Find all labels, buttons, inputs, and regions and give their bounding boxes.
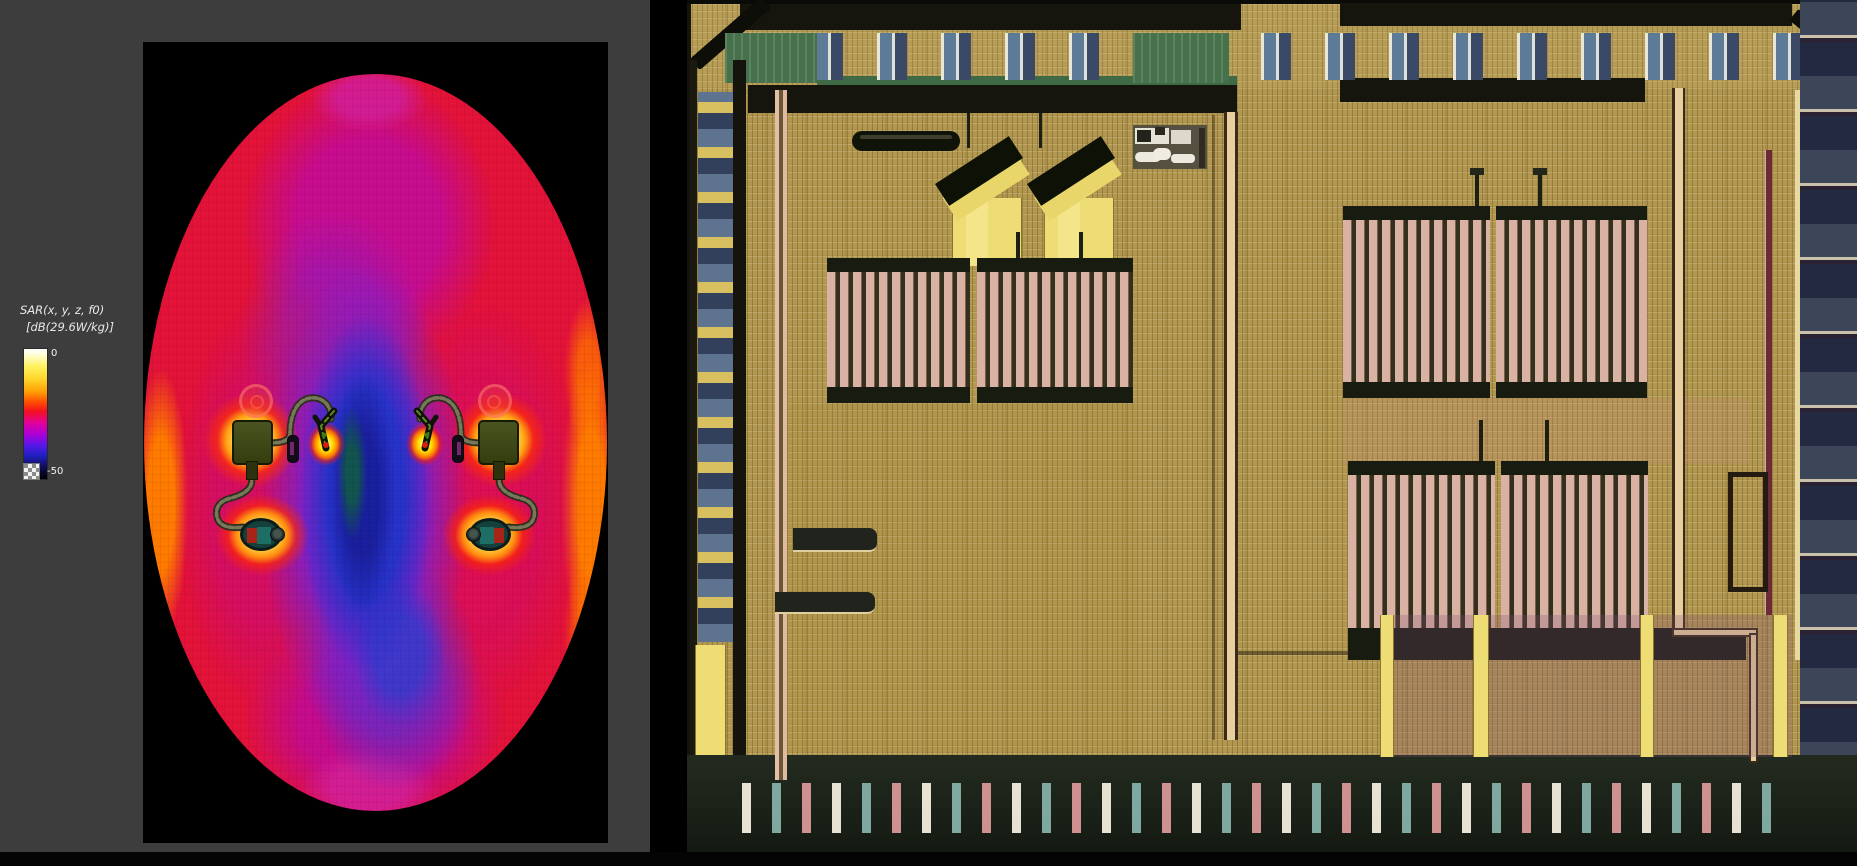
stub-line xyxy=(967,113,970,148)
yellow-rail xyxy=(1380,615,1394,757)
white-test-structure xyxy=(1133,125,1207,169)
bond-pad-row-top xyxy=(813,33,1800,80)
top-capsule-bar xyxy=(852,131,960,151)
faint-horizontal-line xyxy=(1238,651,1350,655)
inline-module-slit xyxy=(457,442,461,455)
right-rail-light-line xyxy=(1795,90,1800,660)
earpiece-teal-segment xyxy=(480,527,494,544)
sar-simulation-panel: SAR(x, y, z, f0) [dB(29.6W/kg)] 0 -50 xyxy=(0,0,650,866)
yellow-rail xyxy=(1640,615,1654,757)
green-pad-patch-mid xyxy=(1133,33,1229,83)
device-cable-stub xyxy=(493,461,505,480)
comb-stub xyxy=(1016,232,1020,258)
comb-stub xyxy=(1079,232,1083,258)
center-region-boundary xyxy=(1212,115,1215,740)
chip-die-micrograph xyxy=(687,0,1857,866)
comb-stub-cap xyxy=(1470,168,1484,175)
sar-plot-area xyxy=(143,42,608,843)
comb-block-upper-right-a xyxy=(1343,206,1490,398)
die-top-bar-left xyxy=(740,4,1241,30)
yellow-rail xyxy=(1773,615,1788,757)
earpiece xyxy=(469,518,511,551)
test-structure-block xyxy=(1171,130,1191,144)
right-bus-step-horizontal xyxy=(1672,628,1758,637)
right-bus-step-vertical xyxy=(1749,633,1758,763)
colorbar-min-label: -50 xyxy=(47,466,63,477)
left-area-tint xyxy=(787,403,1137,753)
test-structure-squiggle xyxy=(1171,154,1195,163)
test-structure-dark-pixel xyxy=(1137,130,1151,142)
die-top-bar-right xyxy=(1340,3,1792,26)
comb-block-upper-left-a xyxy=(827,258,970,403)
comb-stub xyxy=(1479,420,1483,461)
pad-rail-left-inner xyxy=(733,60,746,780)
bracket-structure xyxy=(1728,472,1768,592)
sar-colorbar xyxy=(23,348,48,480)
short-bar-upper xyxy=(793,528,877,552)
colorbar-title-line1: SAR(x, y, z, f0) xyxy=(20,303,104,317)
comb-block-upper-right-b xyxy=(1496,206,1647,398)
yellow-rail xyxy=(1473,615,1489,757)
stub-line xyxy=(1039,113,1042,148)
inline-module xyxy=(452,435,464,463)
bond-pad-row-bottom xyxy=(742,783,1772,833)
test-structure-squiggle xyxy=(1153,148,1171,160)
antenna-hook-icon xyxy=(417,411,436,448)
test-structure-dark-pixel xyxy=(1155,127,1165,135)
earpiece-red-segment xyxy=(493,528,504,543)
left-macro-rail xyxy=(775,90,790,780)
below-range-checker-swatch xyxy=(23,463,40,480)
colorbar-max-label: 0 xyxy=(51,348,57,359)
comb-block-lower-right-a xyxy=(1348,461,1495,628)
device-wires xyxy=(143,42,608,843)
test-structure-edge xyxy=(1199,128,1205,168)
comb-stub xyxy=(1538,172,1542,206)
comb-stub xyxy=(1475,172,1479,206)
bond-pad-column-left xyxy=(698,92,733,642)
panel-separator xyxy=(650,0,687,866)
inner-top-rail-left xyxy=(748,85,1237,113)
center-vertical-bus xyxy=(1224,112,1238,740)
short-bar-lower xyxy=(775,592,875,614)
bottom-letterbox xyxy=(0,852,1857,866)
hearing-device-right xyxy=(143,42,608,843)
top-capsule-highlight xyxy=(860,135,952,139)
device-body xyxy=(478,420,519,465)
comb-stub xyxy=(1545,420,1549,461)
bond-pad-column-right xyxy=(1800,0,1857,852)
comb-block-lower-right-b xyxy=(1501,461,1648,628)
colorbar-title-line2: [dB(29.6W/kg)] xyxy=(26,320,114,334)
right-vertical-bus xyxy=(1672,88,1685,633)
earpiece-receiver-dot xyxy=(466,527,481,542)
comb-stub-cap xyxy=(1533,168,1547,175)
comb-block-upper-left-b xyxy=(977,258,1133,403)
inner-top-rail-right xyxy=(1340,78,1645,102)
